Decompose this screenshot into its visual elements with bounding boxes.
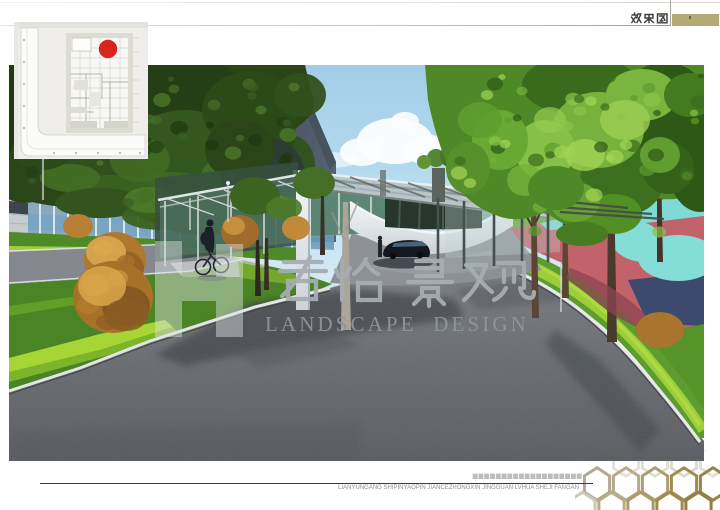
svg-text:LANDSCAPE DESIGN: LANDSCAPE DESIGN — [265, 312, 529, 336]
